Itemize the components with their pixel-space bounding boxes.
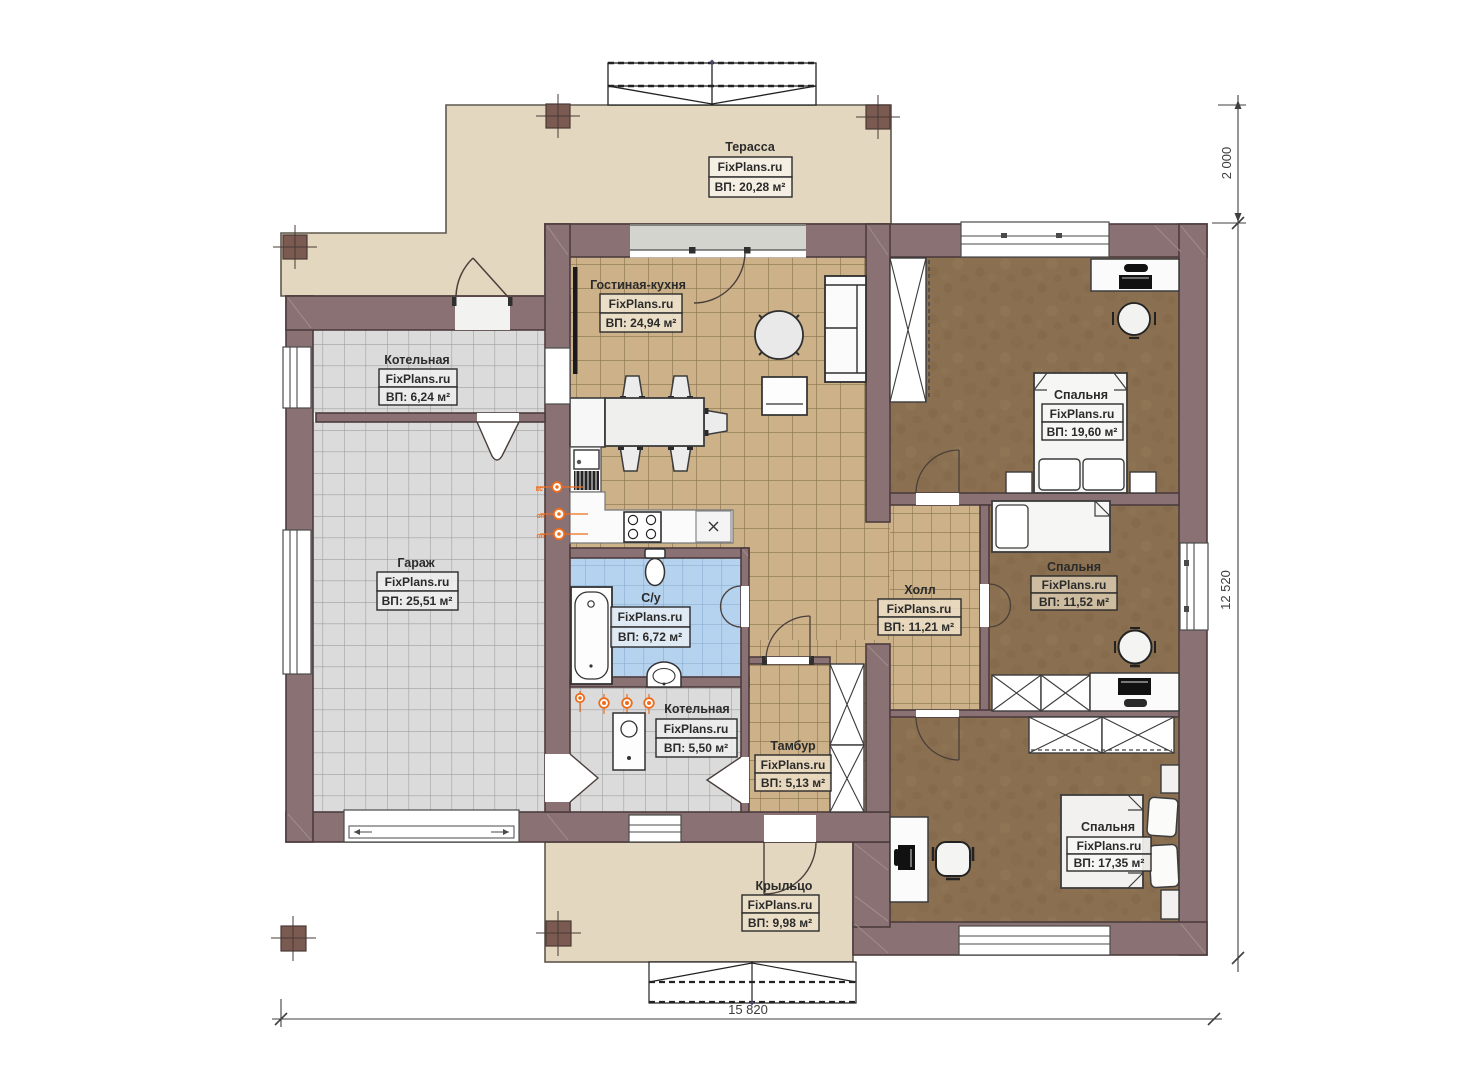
svg-text:FixPlans.ru: FixPlans.ru (618, 610, 683, 624)
svg-text:2 000: 2 000 (1219, 147, 1234, 180)
svg-text:15 820: 15 820 (728, 1002, 768, 1017)
svg-text:Спальня: Спальня (1081, 820, 1135, 834)
svg-text:ВП: 11,52 м²: ВП: 11,52 м² (1039, 595, 1109, 609)
svg-text:Спальня: Спальня (1054, 388, 1108, 402)
svg-text:ВП: 6,24 м²: ВП: 6,24 м² (386, 390, 450, 404)
svg-text:Котельная: Котельная (384, 353, 449, 367)
svg-text:Тамбур: Тамбур (770, 739, 816, 753)
svg-text:ВП: 9,98 м²: ВП: 9,98 м² (748, 916, 812, 930)
svg-text:FixPlans.ru: FixPlans.ru (748, 898, 813, 912)
svg-text:FixPlans.ru: FixPlans.ru (761, 758, 826, 772)
svg-text:Гостиная-кухня: Гостиная-кухня (590, 278, 686, 292)
svg-text:ВП: 20,28 м²: ВП: 20,28 м² (715, 180, 786, 194)
svg-text:ВП: 17,35 м²: ВП: 17,35 м² (1074, 856, 1145, 870)
svg-text:Гараж: Гараж (397, 556, 434, 570)
svg-text:ВП: 25,51 м²: ВП: 25,51 м² (382, 594, 453, 608)
svg-text:ВП: 24,94 м²: ВП: 24,94 м² (606, 316, 677, 330)
svg-text:FixPlans.ru: FixPlans.ru (609, 297, 674, 311)
svg-text:ВП: 19,60 м²: ВП: 19,60 м² (1047, 425, 1118, 439)
svg-text:ВП: 11,21 м²: ВП: 11,21 м² (884, 620, 954, 634)
svg-text:С/у: С/у (641, 591, 661, 605)
svg-text:12 520: 12 520 (1218, 570, 1233, 610)
svg-text:FixPlans.ru: FixPlans.ru (1077, 839, 1142, 853)
svg-text:оп: оп (536, 533, 545, 540)
svg-text:FixPlans.ru: FixPlans.ru (386, 372, 451, 386)
svg-text:FixPlans.ru: FixPlans.ru (718, 160, 783, 174)
svg-text:Спальня: Спальня (1047, 560, 1101, 574)
svg-text:Терасса: Терасса (725, 140, 776, 154)
svg-text:FixPlans.ru: FixPlans.ru (385, 575, 450, 589)
svg-text:ВП: 6,72 м²: ВП: 6,72 м² (618, 630, 682, 644)
svg-text:FixPlans.ru: FixPlans.ru (664, 722, 729, 736)
svg-text:FixPlans.ru: FixPlans.ru (887, 602, 952, 616)
svg-text:ВП: 5,13 м²: ВП: 5,13 м² (761, 776, 825, 790)
svg-text:FixPlans.ru: FixPlans.ru (1050, 407, 1115, 421)
svg-text:FixPlans.ru: FixPlans.ru (1042, 578, 1107, 592)
svg-text:Крыльцо: Крыльцо (756, 879, 813, 893)
svg-text:ВП: 5,50 м²: ВП: 5,50 м² (664, 741, 728, 755)
svg-text:Холл: Холл (904, 583, 935, 597)
svg-text:оп: оп (536, 513, 545, 520)
svg-text:кс: кс (536, 486, 543, 493)
svg-text:Котельная: Котельная (664, 702, 729, 716)
